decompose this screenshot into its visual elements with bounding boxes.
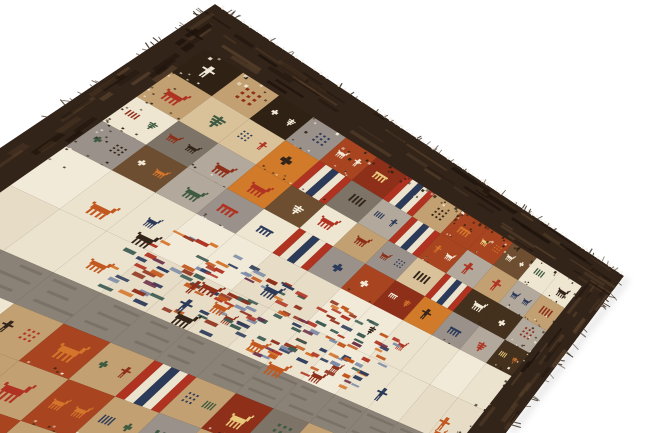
rug-product-photo [0,0,650,433]
rug-photo-canvas [0,0,650,433]
